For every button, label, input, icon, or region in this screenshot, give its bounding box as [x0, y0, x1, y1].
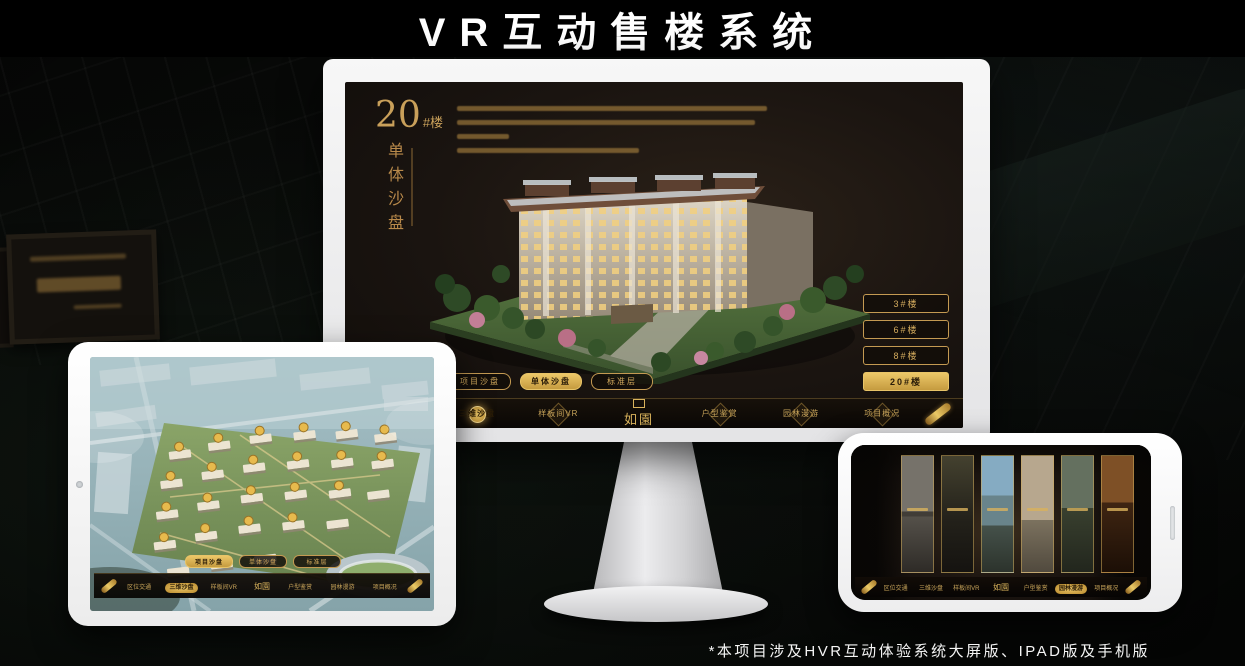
- subtab-project-sandtable[interactable]: 项目沙盘: [449, 373, 511, 390]
- nav-item-unit-plans[interactable]: 户型鉴赏: [679, 408, 760, 419]
- floor-button-8[interactable]: 8#楼: [863, 346, 949, 365]
- tablet-device: 项目沙盘 单体沙盘 标准层 区位交通 三维沙盘 样板间VR 如園 户型鉴赏 园林…: [68, 342, 456, 626]
- panel-caption-blur: [1027, 508, 1048, 511]
- phone-nav-garden-tour[interactable]: 园林漫游: [1053, 583, 1088, 592]
- tablet-nav-unit-plans[interactable]: 户型鉴赏: [279, 582, 321, 591]
- gallery-panel[interactable]: [1021, 455, 1054, 573]
- floor-button-3[interactable]: 3#楼: [863, 294, 949, 313]
- promo-poster: VR互动售楼系统 20#楼 单体沙盘: [0, 0, 1245, 666]
- plaque-seal-blur: [74, 304, 122, 310]
- tablet-screen: 项目沙盘 单体沙盘 标准层 区位交通 三维沙盘 样板间VR 如園 户型鉴赏 园林…: [90, 357, 434, 611]
- floor-selector: 3#楼 6#楼 8#楼 20#楼: [863, 294, 949, 391]
- plaque-calligraphy-blur: [37, 276, 121, 293]
- gallery-panel[interactable]: [1101, 455, 1134, 573]
- scene-gallery: [901, 455, 1134, 573]
- subtab-standard-floor[interactable]: 标准层: [591, 373, 653, 390]
- phone-navbar: 区位交通 三维沙盘 样板间VR 如園 户型鉴赏 园林漫游 项目概况: [855, 577, 1147, 597]
- tablet-nav-location[interactable]: 区位交通: [118, 582, 160, 591]
- tablet-nav-showroom-vr[interactable]: 样板间VR: [203, 582, 245, 591]
- scroll-handle-icon[interactable]: [406, 578, 424, 594]
- scroll-handle-icon[interactable]: [860, 579, 878, 595]
- scroll-handle-icon[interactable]: [100, 578, 118, 594]
- scroll-handle-icon[interactable]: [924, 401, 953, 426]
- panel-caption-blur: [947, 508, 968, 511]
- tablet-nav-3d-sandtable[interactable]: 三维沙盘: [160, 582, 202, 591]
- phone-device: 区位交通 三维沙盘 样板间VR 如園 户型鉴赏 园林漫游 项目概况: [838, 433, 1182, 612]
- panel-caption-blur: [1107, 508, 1128, 511]
- seal-icon: [633, 399, 645, 408]
- plaque-inscription-blur: [30, 253, 126, 261]
- subtab-single-sandtable[interactable]: 单体沙盘: [520, 373, 582, 390]
- phone-screen: 区位交通 三维沙盘 样板间VR 如園 户型鉴赏 园林漫游 项目概况: [851, 445, 1151, 600]
- gallery-panel[interactable]: [901, 455, 934, 573]
- building-model-render: [415, 146, 885, 384]
- nav-item-garden-tour[interactable]: 园林漫游: [760, 408, 841, 419]
- monitor-stand-base: [544, 586, 768, 622]
- gallery-panel[interactable]: [981, 455, 1014, 573]
- description-line: [457, 134, 509, 139]
- sandtable-subtabs: 项目沙盘 单体沙盘 标准层: [449, 373, 653, 390]
- tablet-camera-icon: [76, 481, 83, 488]
- tablet-nav-garden-tour[interactable]: 园林漫游: [321, 582, 363, 591]
- tablet-subtab-single-sandtable[interactable]: 单体沙盘: [239, 555, 287, 568]
- tablet-nav-project-overview[interactable]: 项目概况: [364, 582, 406, 591]
- phone-nav-project-overview[interactable]: 项目概况: [1089, 583, 1124, 592]
- panel-caption-blur: [907, 508, 928, 511]
- tablet-navbar: 区位交通 三维沙盘 样板间VR 如園 户型鉴赏 园林漫游 项目概况: [94, 573, 430, 598]
- scroll-handle-icon[interactable]: [1124, 579, 1142, 595]
- nav-item-project-overview[interactable]: 项目概况: [842, 408, 923, 419]
- phone-nav-location[interactable]: 区位交通: [878, 583, 913, 592]
- tablet-brand-logo[interactable]: 如園: [245, 581, 279, 592]
- building-number: 20: [375, 95, 421, 136]
- building-number-suffix: #楼: [423, 115, 443, 130]
- phone-earpiece: [1170, 506, 1175, 540]
- gallery-panel[interactable]: [941, 455, 974, 573]
- tablet-subtab-standard-floor[interactable]: 标准层: [293, 555, 341, 568]
- phone-brand-logo[interactable]: 如園: [984, 582, 1018, 593]
- phone-nav-showroom-vr[interactable]: 样板间VR: [949, 583, 984, 592]
- nav-item-showroom-vr[interactable]: 样板间VR: [518, 408, 599, 419]
- panel-caption-blur: [1067, 508, 1088, 511]
- gallery-panel[interactable]: [1061, 455, 1094, 573]
- brand-logo[interactable]: 如園: [599, 399, 679, 428]
- tablet-subtab-project-sandtable[interactable]: 项目沙盘: [185, 555, 233, 568]
- phone-nav-3d-sandtable[interactable]: 三维沙盘: [913, 583, 948, 592]
- panel-caption-blur: [987, 508, 1008, 511]
- page-title: VR互动售楼系统: [419, 0, 827, 58]
- floor-button-6[interactable]: 6#楼: [863, 320, 949, 339]
- tablet-sandtable-subtabs: 项目沙盘 单体沙盘 标准层: [185, 555, 341, 568]
- footnote: *本项目涉及HVR互动体验系统大屏版、IPAD版及手机版: [709, 640, 1150, 661]
- description-line: [457, 106, 767, 111]
- floor-button-20[interactable]: 20#楼: [863, 372, 949, 391]
- subtitle-english-caption-blur: [411, 148, 413, 226]
- building-subtitle: 单体沙盘: [381, 142, 405, 252]
- phone-nav-unit-plans[interactable]: 户型鉴赏: [1018, 583, 1053, 592]
- banner: VR互动售楼系统: [0, 0, 1245, 57]
- award-plaque: [6, 229, 160, 344]
- description-line: [457, 120, 755, 125]
